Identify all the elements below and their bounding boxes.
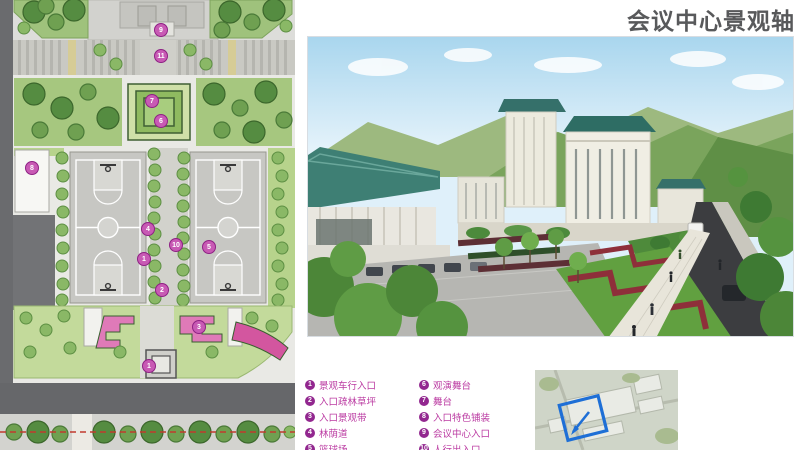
page-title: 会议中心景观轴 bbox=[275, 2, 795, 36]
key-map-thumbnail bbox=[535, 370, 678, 450]
plan-marker: 5 bbox=[202, 240, 216, 254]
building-footprint bbox=[15, 150, 49, 212]
legend: 1景观车行入口2入口疏林草坪3入口景观带4林荫道5篮球场 6观演舞台7舞台8入口… bbox=[305, 378, 520, 450]
legend-label: 林荫道 bbox=[319, 426, 348, 440]
legend-item: 7舞台 bbox=[419, 394, 519, 407]
site-plan: 91176841051231 bbox=[0, 0, 295, 450]
plan-marker: 4 bbox=[141, 222, 155, 236]
rendering-illustration bbox=[308, 37, 794, 337]
plan-marker: 8 bbox=[25, 161, 39, 175]
legend-item: 8入口特色铺装 bbox=[419, 410, 519, 423]
legend-number-badge: 1 bbox=[305, 380, 315, 390]
plan-marker: 6 bbox=[154, 114, 168, 128]
square-garden-section bbox=[14, 78, 292, 146]
legend-item: 3入口景观带 bbox=[305, 410, 405, 423]
legend-label: 会议中心入口 bbox=[433, 426, 490, 440]
plan-marker: 1 bbox=[137, 252, 151, 266]
legend-item: 1景观车行入口 bbox=[305, 378, 405, 391]
legend-label: 入口特色铺装 bbox=[433, 410, 490, 424]
legend-label: 入口景观带 bbox=[319, 410, 367, 424]
legend-number-badge: 5 bbox=[305, 444, 315, 450]
legend-item: 4林荫道 bbox=[305, 426, 405, 439]
plan-marker: 7 bbox=[145, 94, 159, 108]
legend-item: 9会议中心入口 bbox=[419, 426, 519, 439]
legend-number-badge: 2 bbox=[305, 396, 315, 406]
plan-marker: 11 bbox=[154, 49, 168, 63]
legend-column-left: 1景观车行入口2入口疏林草坪3入口景观带4林荫道5篮球场 bbox=[305, 378, 405, 450]
legend-number-badge: 9 bbox=[419, 428, 429, 438]
legend-item: 2入口疏林草坪 bbox=[305, 394, 405, 407]
legend-number-badge: 3 bbox=[305, 412, 315, 422]
legend-number-badge: 4 bbox=[305, 428, 315, 438]
legend-number-badge: 8 bbox=[419, 412, 429, 422]
plan-marker: 2 bbox=[155, 283, 169, 297]
plan-marker: 10 bbox=[169, 238, 183, 252]
key-map bbox=[535, 370, 678, 450]
plan-marker: 9 bbox=[154, 23, 168, 37]
legend-label: 篮球场 bbox=[319, 442, 348, 450]
legend-label: 观演舞台 bbox=[433, 378, 471, 392]
legend-number-badge: 10 bbox=[419, 444, 429, 450]
legend-item: 5篮球场 bbox=[305, 442, 405, 450]
legend-label: 景观车行入口 bbox=[319, 378, 376, 392]
legend-number-badge: 7 bbox=[419, 396, 429, 406]
plan-marker: 3 bbox=[192, 320, 206, 334]
legend-item: 10人行出入口 bbox=[419, 442, 519, 450]
legend-label: 入口疏林草坪 bbox=[319, 394, 376, 408]
plan-marker: 1 bbox=[142, 359, 156, 373]
presentation-slide: 91176841051231 会议中心景观轴 bbox=[0, 0, 800, 450]
legend-label: 舞台 bbox=[433, 394, 452, 408]
perspective-rendering bbox=[307, 36, 794, 337]
legend-item: 6观演舞台 bbox=[419, 378, 519, 391]
legend-label: 人行出入口 bbox=[433, 442, 481, 450]
legend-number-badge: 6 bbox=[419, 380, 429, 390]
legend-column-right: 6观演舞台7舞台8入口特色铺装9会议中心入口10人行出入口 bbox=[419, 378, 519, 450]
